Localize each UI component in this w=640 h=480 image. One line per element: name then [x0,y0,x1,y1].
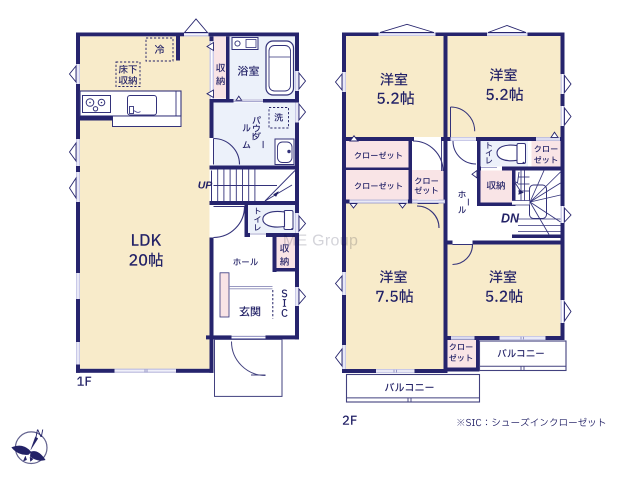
svg-text:DN: DN [501,212,520,226]
svg-text:ME Group: ME Group [283,233,358,250]
svg-text:UP: UP [198,180,214,192]
